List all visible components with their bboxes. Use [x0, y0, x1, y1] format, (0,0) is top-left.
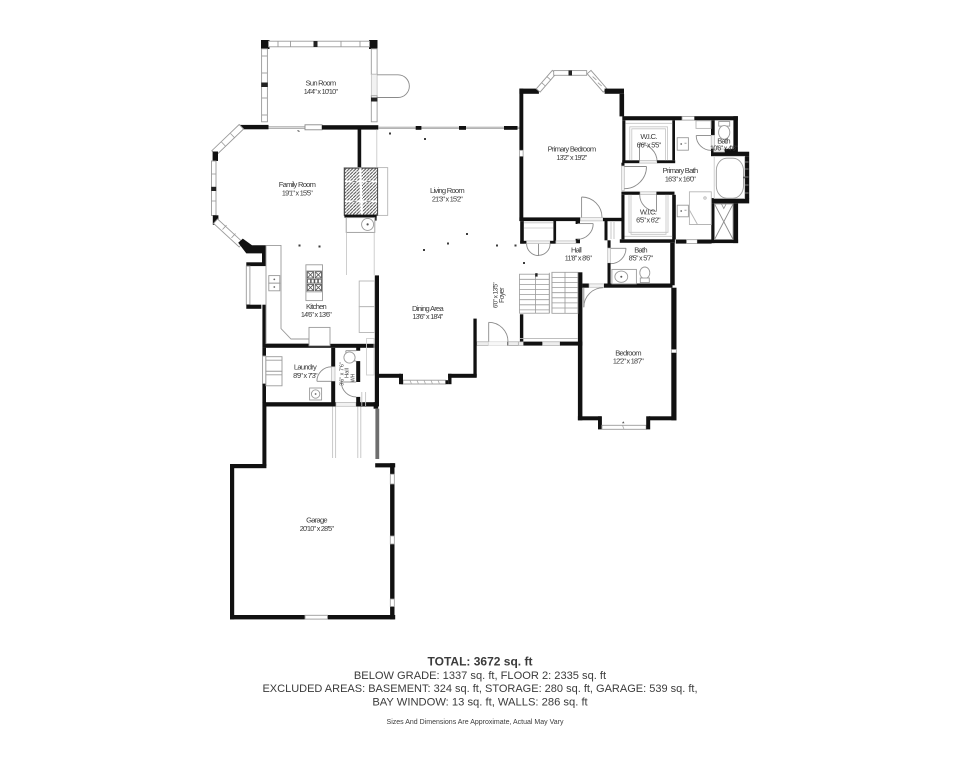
svg-text:6'0" x 13'5": 6'0" x 13'5" [493, 282, 500, 309]
svg-text:BAY WINDOW: 13 sq. ft, WALLS:: BAY WINDOW: 13 sq. ft, WALLS: 286 sq. ft [372, 696, 588, 708]
svg-text:12'2" x 18'7": 12'2" x 18'7" [613, 357, 644, 366]
svg-text:14'4" x 10'10": 14'4" x 10'10" [304, 87, 339, 96]
svg-text:BELOW GRADE: 1337 sq. ft, FLOO: BELOW GRADE: 1337 sq. ft, FLOOR 2: 2335 … [354, 670, 606, 682]
svg-text:20'10" x 28'5": 20'10" x 28'5" [300, 524, 335, 533]
svg-text:Sizes And Dimensions Are Appro: Sizes And Dimensions Are Approximate, Ac… [387, 719, 564, 726]
svg-text:16'3" x 16'0": 16'3" x 16'0" [665, 175, 696, 184]
svg-text:21'3" x 15'2": 21'3" x 15'2" [432, 195, 463, 204]
svg-text:14'6" x 13'6": 14'6" x 13'6" [301, 310, 332, 319]
svg-text:3'6" x 7'6": 3'6" x 7'6" [340, 362, 346, 386]
svg-text:TOTAL: 3672 sq. ft: TOTAL: 3672 sq. ft [428, 655, 533, 669]
svg-text:EXCLUDED AREAS: BASEMENT: 324: EXCLUDED AREAS: BASEMENT: 324 sq. ft, ST… [262, 683, 697, 695]
svg-text:13'6" x 18'4": 13'6" x 18'4" [412, 312, 443, 321]
svg-text:WH: WH [351, 373, 357, 382]
svg-text:6'5" x 6'2": 6'5" x 6'2" [636, 216, 661, 225]
svg-text:Foyer: Foyer [499, 287, 506, 303]
svg-text:11'8" x 8'6": 11'8" x 8'6" [565, 254, 593, 263]
svg-text:8'5" x 5'7": 8'5" x 5'7" [629, 254, 654, 263]
svg-text:8'9" x 7'3": 8'9" x 7'3" [293, 371, 318, 380]
svg-text:13'2" x 19'2": 13'2" x 19'2" [556, 153, 587, 162]
svg-text:19'1" x 15'5": 19'1" x 15'5" [282, 189, 313, 198]
svg-text:6'6" x 5'5": 6'6" x 5'5" [637, 141, 662, 150]
svg-text:10'6" x 4'6": 10'6" x 4'6" [710, 144, 738, 153]
